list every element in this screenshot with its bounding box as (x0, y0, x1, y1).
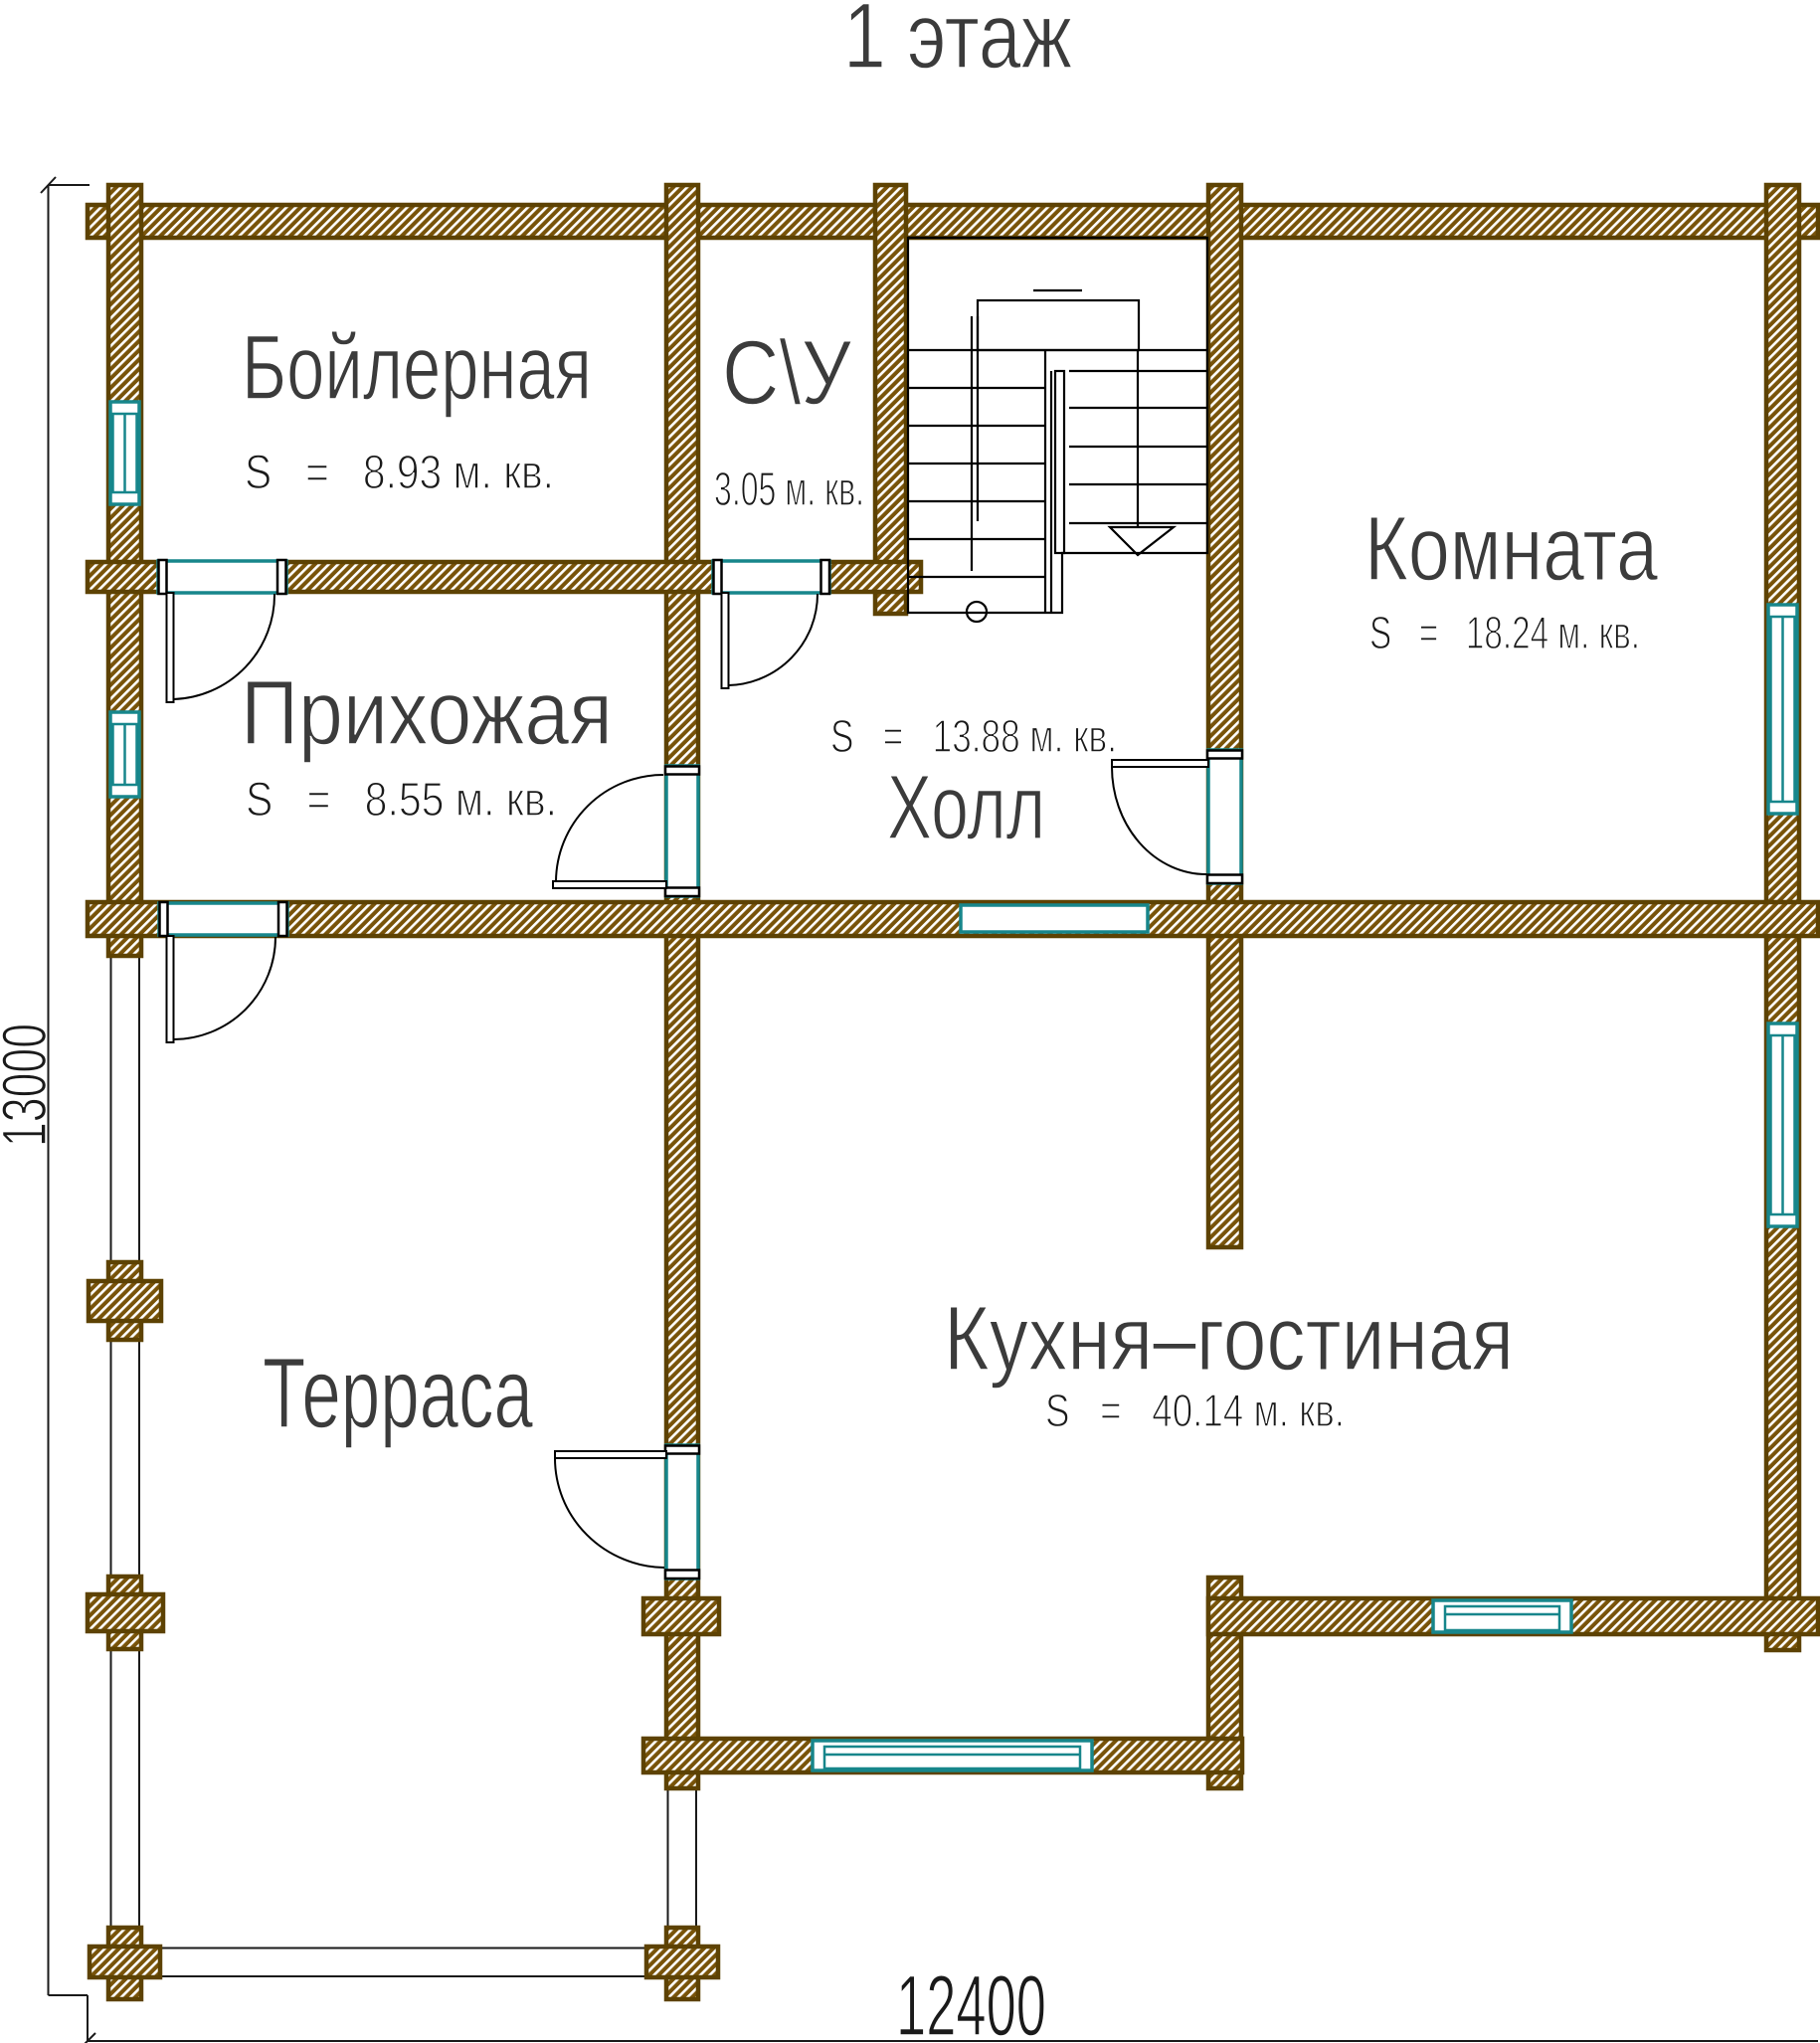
svg-text:3.05 м. кв.: 3.05 м. кв. (714, 464, 864, 516)
svg-text:S = 8.93 м. кв.: S = 8.93 м. кв. (245, 447, 554, 499)
svg-text:Прихожая: Прихожая (241, 662, 613, 764)
svg-text:Кухня–гостиная: Кухня–гостиная (944, 1288, 1514, 1390)
svg-text:С\У: С\У (722, 322, 851, 424)
svg-text:S = 13.88 м. кв.: S = 13.88 м. кв. (830, 710, 1117, 762)
svg-text:S = 18.24 м. кв.: S = 18.24 м. кв. (1369, 607, 1640, 658)
svg-text:Холл: Холл (887, 757, 1045, 858)
svg-text:S = 8.55 м. кв.: S = 8.55 м. кв. (246, 774, 557, 827)
svg-text:13000: 13000 (0, 1023, 60, 1147)
svg-text:S = 40.14 м. кв.: S = 40.14 м. кв. (1045, 1385, 1345, 1436)
svg-text:12400: 12400 (896, 1958, 1046, 2043)
svg-text:Терраса: Терраса (263, 1338, 533, 1449)
svg-text:Комната: Комната (1365, 498, 1659, 600)
svg-text:1 этаж: 1 этаж (843, 0, 1072, 88)
svg-text:Бойлерная: Бойлерная (242, 317, 592, 419)
